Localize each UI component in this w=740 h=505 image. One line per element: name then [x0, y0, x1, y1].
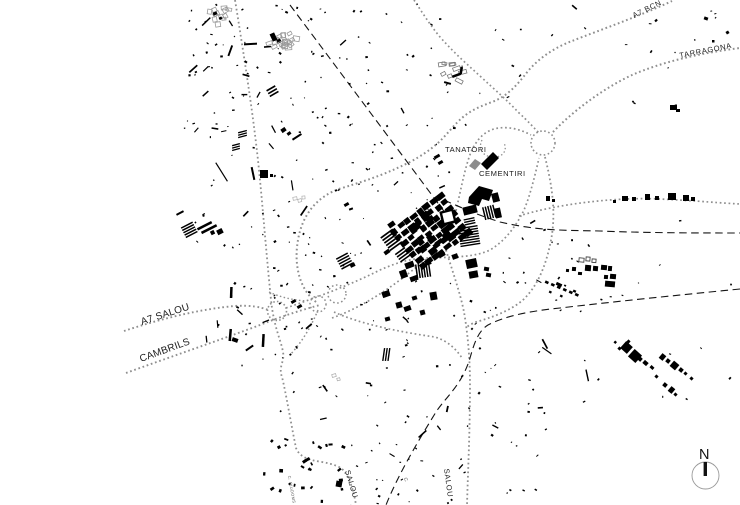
- svg-text:CEMENTIRI: CEMENTIRI: [479, 169, 526, 178]
- svg-text:TANATORI: TANATORI: [445, 145, 487, 154]
- svg-text:N: N: [699, 447, 709, 463]
